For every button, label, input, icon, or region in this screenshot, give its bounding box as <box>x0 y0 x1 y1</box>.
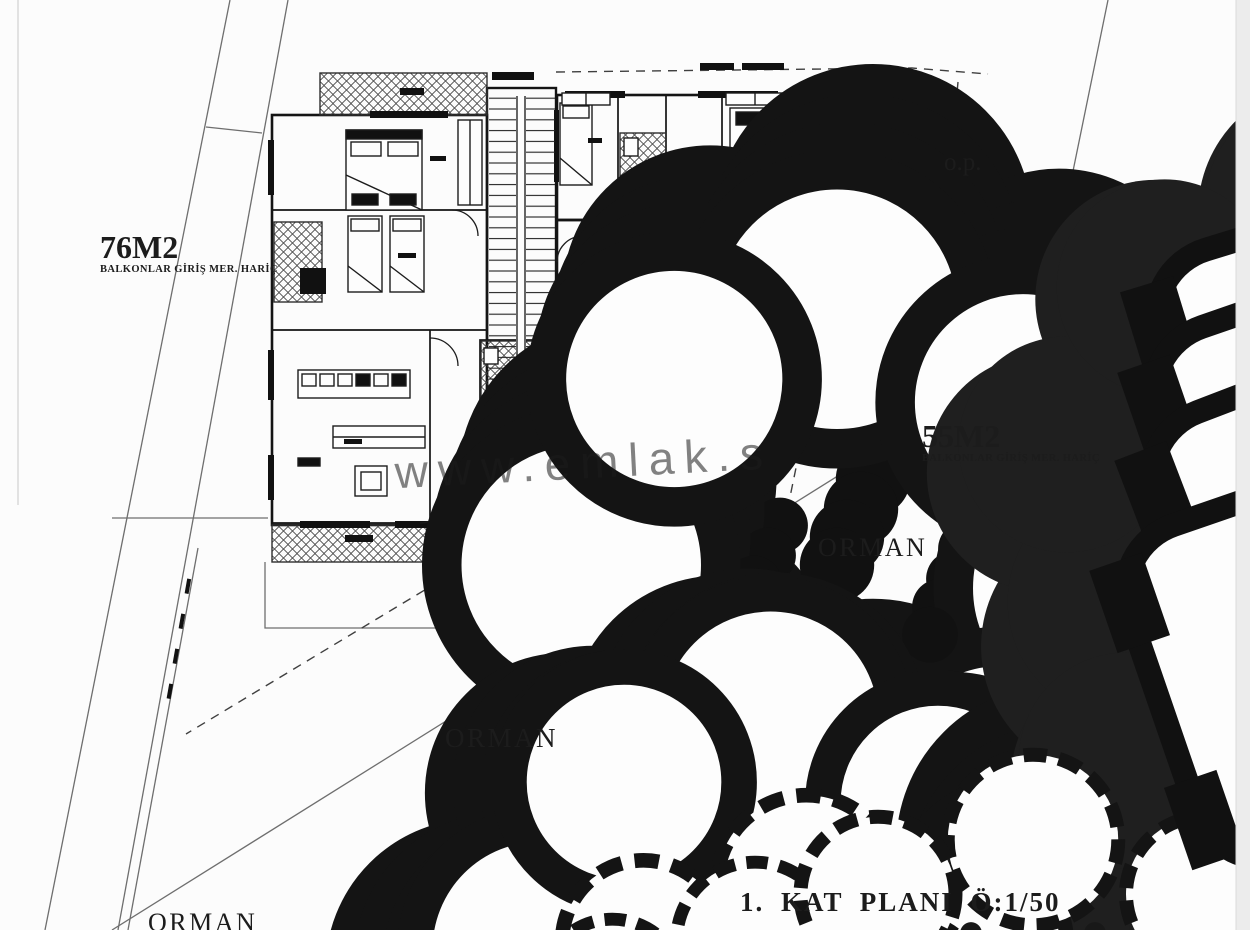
area-right-note: BALKONLAR GİRİŞ MER. HARİÇ <box>922 452 1100 464</box>
bed <box>560 103 592 185</box>
side-table <box>355 466 387 496</box>
orman-label-right: ORMAN <box>818 533 927 562</box>
bed <box>346 130 422 210</box>
floor-plan-image: www.emlak.s 76M2 BALKONLAR GİRİŞ MER. HA… <box>0 0 1250 930</box>
op-label: o.p. <box>944 149 982 176</box>
site-plan-drawing: www.emlak.s 76M2 BALKONLAR GİRİŞ MER. HA… <box>0 0 1250 930</box>
stair-dimension-label <box>492 72 534 80</box>
plan-title: 1. KAT PLANI Ö:1/50 <box>740 887 1061 917</box>
orman-label-bottom-left: ORMAN <box>148 908 257 930</box>
kitchen-counter <box>298 370 410 398</box>
area-right-value: 55M2 <box>922 418 1000 454</box>
orman-label-bottom: ORMAN <box>445 723 558 753</box>
area-left-note: BALKONLAR GİRİŞ MER. HARİÇ <box>100 263 278 275</box>
tv-unit <box>298 458 320 466</box>
area-left-value: 76M2 <box>100 229 178 265</box>
